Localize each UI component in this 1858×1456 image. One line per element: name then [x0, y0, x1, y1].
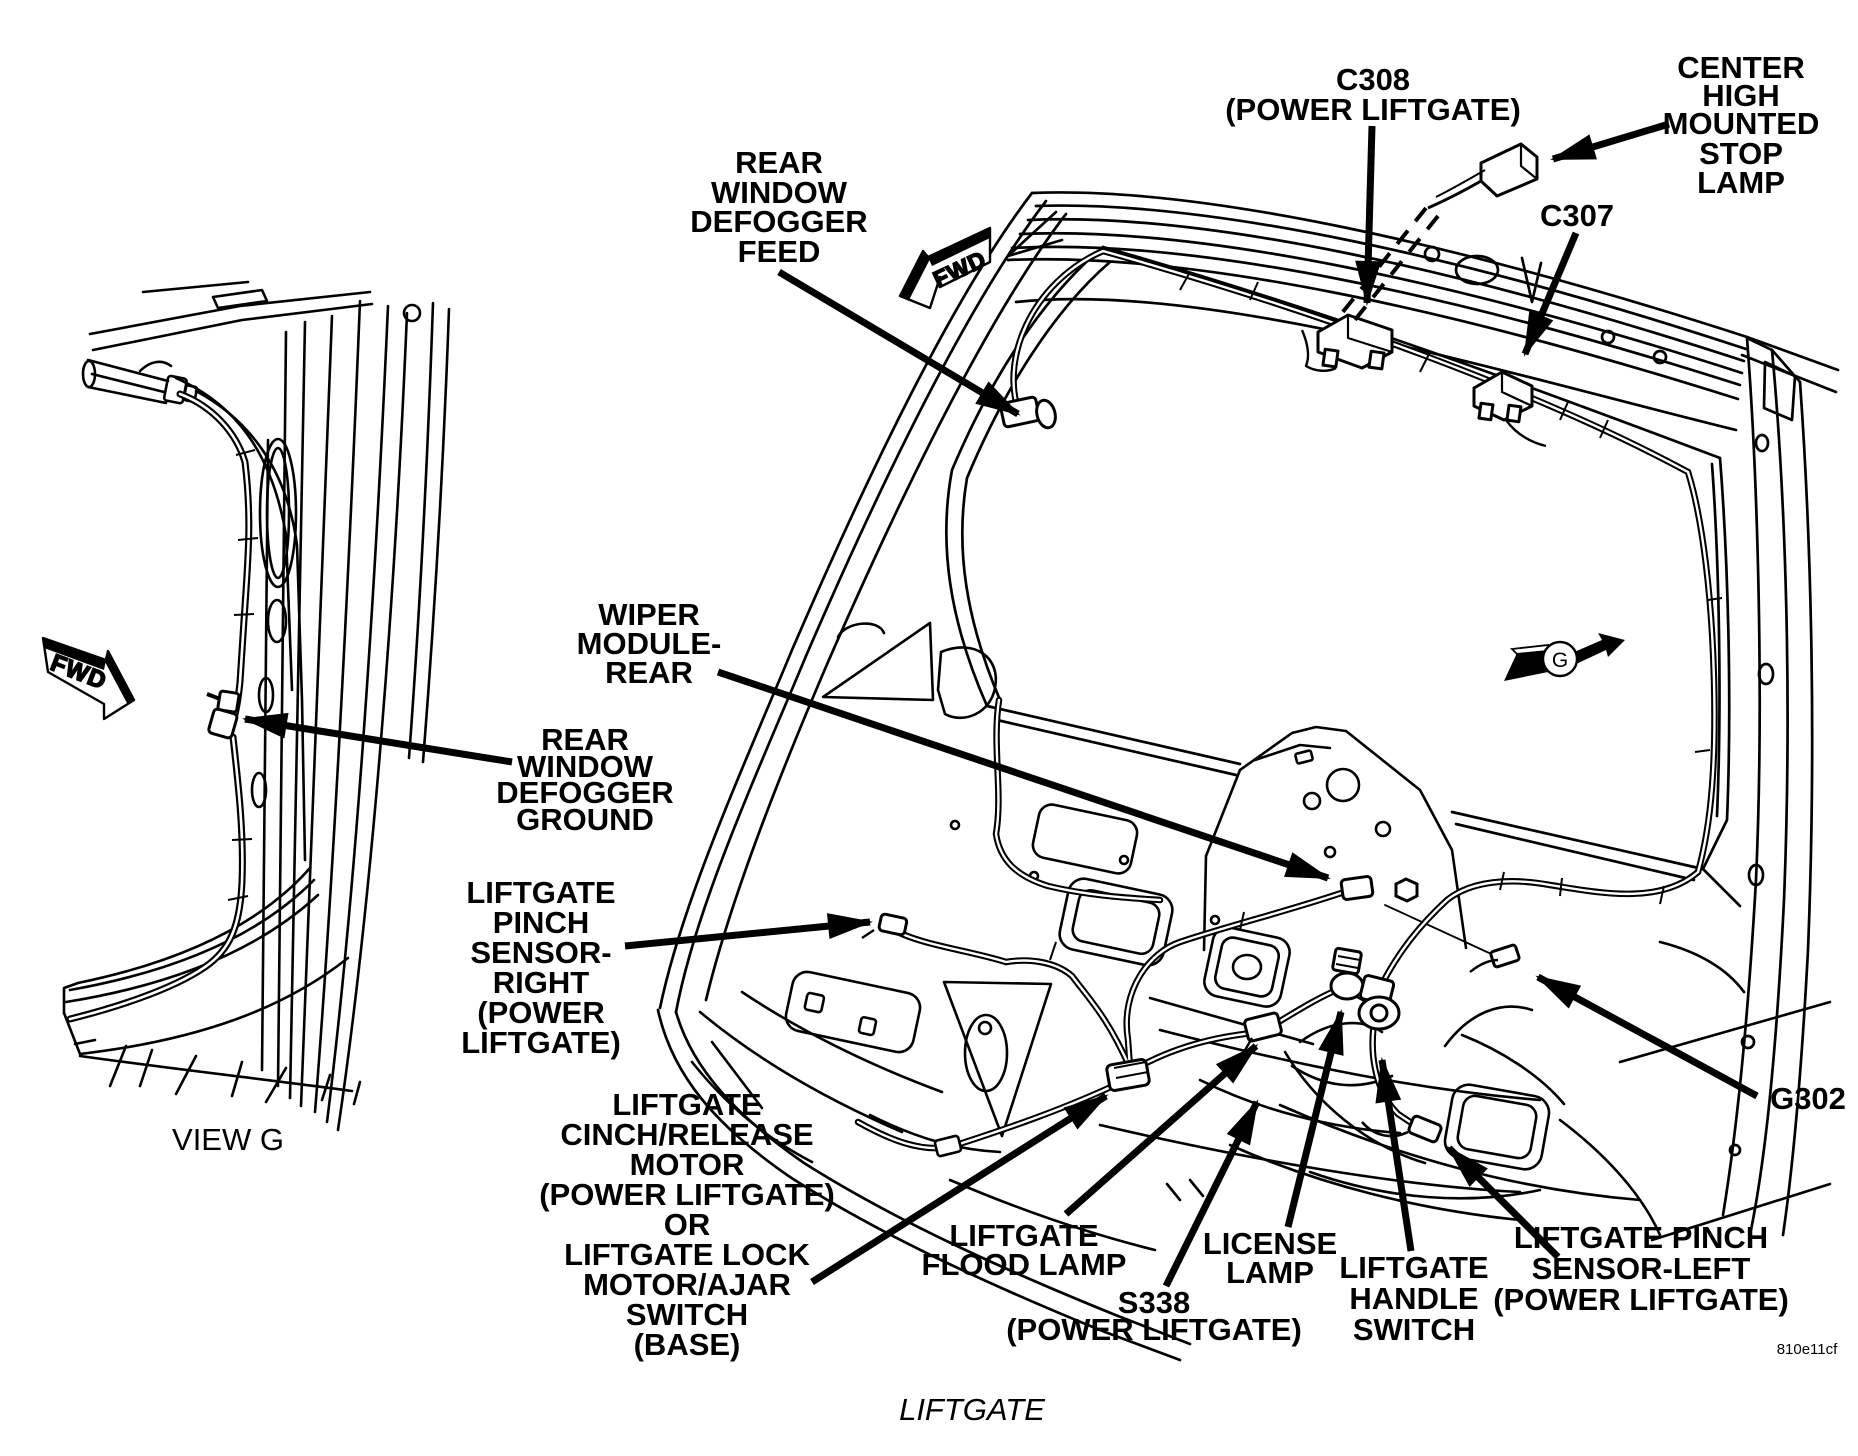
svg-text:LIFTGATE PINCH: LIFTGATE PINCH — [1514, 1220, 1768, 1255]
svg-text:C307: C307 — [1540, 198, 1614, 233]
svg-text:LIFTGATE: LIFTGATE — [899, 1392, 1045, 1427]
svg-text:VIEW G: VIEW G — [172, 1122, 284, 1157]
svg-text:LIFTGATE: LIFTGATE — [1339, 1250, 1488, 1285]
svg-text:GROUND: GROUND — [516, 802, 654, 837]
svg-text:810e11cf: 810e11cf — [1777, 1341, 1838, 1358]
svg-text:SWITCH: SWITCH — [1353, 1312, 1475, 1347]
svg-text:(POWER LIFTGATE): (POWER LIFTGATE) — [1225, 92, 1521, 127]
svg-text:G: G — [1552, 649, 1568, 672]
svg-text:FEED: FEED — [738, 234, 821, 269]
svg-text:FLOOD LAMP: FLOOD LAMP — [922, 1247, 1127, 1282]
svg-text:REAR: REAR — [605, 655, 693, 690]
svg-text:LAMP: LAMP — [1697, 165, 1785, 200]
svg-text:LAMP: LAMP — [1226, 1255, 1314, 1290]
svg-text:HANDLE: HANDLE — [1349, 1281, 1478, 1316]
svg-text:(POWER LIFTGATE): (POWER LIFTGATE) — [1493, 1282, 1789, 1317]
svg-text:(BASE): (BASE) — [634, 1327, 741, 1362]
svg-text:G302: G302 — [1770, 1081, 1846, 1116]
svg-text:(POWER LIFTGATE): (POWER LIFTGATE) — [1006, 1312, 1302, 1347]
svg-text:LIFTGATE): LIFTGATE) — [461, 1025, 621, 1060]
svg-text:SENSOR-LEFT: SENSOR-LEFT — [1532, 1251, 1751, 1286]
